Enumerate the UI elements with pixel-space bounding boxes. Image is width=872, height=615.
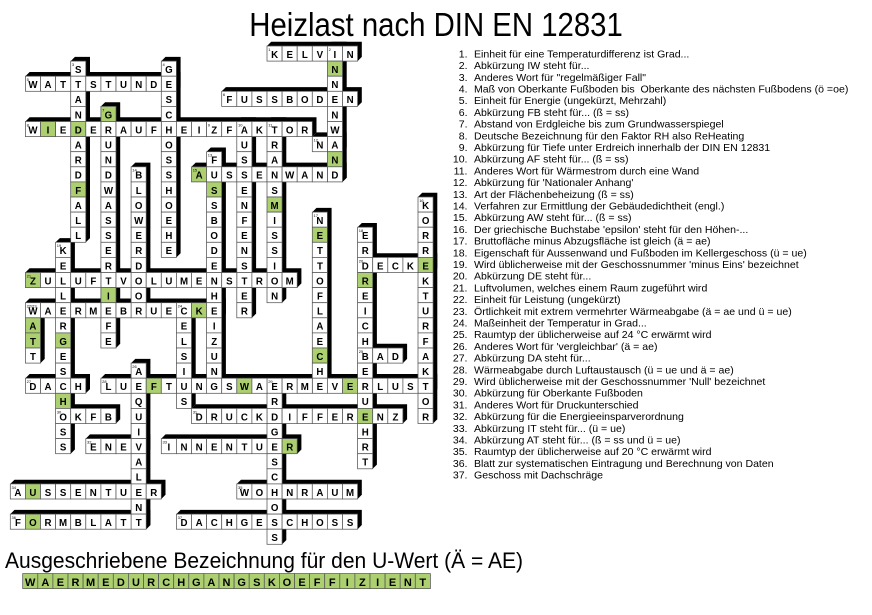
svg-text:21: 21 bbox=[27, 273, 32, 278]
svg-text:15: 15 bbox=[193, 168, 198, 173]
svg-text:T: T bbox=[105, 276, 111, 287]
svg-text:E: E bbox=[196, 276, 203, 287]
svg-text:Abkürzung DA steht für...: Abkürzung DA steht für... bbox=[474, 353, 591, 365]
svg-text:5.: 5. bbox=[459, 95, 468, 107]
svg-text:R: R bbox=[135, 307, 142, 318]
svg-text:8.: 8. bbox=[459, 130, 468, 142]
svg-text:E: E bbox=[286, 50, 293, 61]
svg-text:E: E bbox=[60, 261, 67, 272]
svg-text:W: W bbox=[25, 577, 36, 589]
svg-text:F: F bbox=[151, 125, 157, 136]
svg-text:25: 25 bbox=[359, 349, 364, 354]
svg-text:22.: 22. bbox=[453, 294, 468, 306]
svg-text:A: A bbox=[105, 201, 112, 212]
svg-text:A: A bbox=[45, 382, 52, 393]
svg-text:S: S bbox=[271, 518, 278, 529]
svg-text:T: T bbox=[362, 458, 368, 469]
svg-text:V: V bbox=[120, 276, 127, 287]
svg-text:L: L bbox=[90, 518, 96, 529]
svg-text:U: U bbox=[120, 488, 127, 499]
svg-text:V: V bbox=[317, 50, 324, 61]
svg-text:W: W bbox=[285, 171, 295, 182]
svg-text:36.: 36. bbox=[453, 458, 468, 470]
svg-text:U: U bbox=[241, 141, 248, 152]
svg-text:O: O bbox=[422, 216, 430, 227]
svg-text:22/23: 22/23 bbox=[27, 304, 38, 309]
svg-text:17: 17 bbox=[314, 213, 319, 218]
svg-text:N: N bbox=[226, 443, 233, 454]
svg-text:Abkürzung AF steht für... (ß =: Abkürzung AF steht für... (ß = ss) bbox=[474, 154, 628, 166]
svg-text:N: N bbox=[404, 577, 412, 589]
svg-text:F: F bbox=[317, 412, 323, 423]
svg-text:1.: 1. bbox=[459, 48, 468, 60]
svg-text:A: A bbox=[377, 352, 384, 363]
svg-text:24.: 24. bbox=[453, 318, 468, 330]
svg-text:Abkürzung für Oberkante Fußbod: Abkürzung für Oberkante Fußboden bbox=[474, 388, 643, 400]
svg-text:T: T bbox=[75, 80, 81, 91]
svg-text:D: D bbox=[331, 171, 338, 182]
svg-text:N: N bbox=[135, 503, 142, 514]
svg-text:E: E bbox=[57, 577, 64, 589]
svg-text:N: N bbox=[286, 488, 293, 499]
svg-text:Abkürzung AT steht für... (ß =: Abkürzung AT steht für... (ß = ss und ü … bbox=[474, 435, 681, 447]
svg-text:Anderes Wort für "regelmäßiger: Anderes Wort für "regelmäßiger Fall" bbox=[474, 72, 646, 84]
svg-text:S: S bbox=[271, 186, 278, 197]
svg-text:U: U bbox=[422, 307, 429, 318]
svg-text:S: S bbox=[75, 65, 82, 76]
svg-text:R: R bbox=[422, 412, 429, 423]
svg-text:N: N bbox=[196, 382, 203, 393]
svg-text:Blatt zur systematischen Eintr: Blatt zur systematischen Eintragung und … bbox=[474, 458, 774, 470]
svg-text:K: K bbox=[422, 276, 429, 287]
svg-text:R: R bbox=[105, 261, 112, 272]
svg-text:V: V bbox=[332, 382, 339, 393]
svg-text:C: C bbox=[60, 382, 67, 393]
svg-text:35.: 35. bbox=[453, 446, 468, 458]
svg-text:H: H bbox=[226, 518, 233, 529]
svg-text:U: U bbox=[120, 80, 127, 91]
svg-text:S: S bbox=[271, 533, 278, 544]
svg-text:B: B bbox=[120, 307, 127, 318]
svg-text:E: E bbox=[60, 307, 67, 318]
svg-text:O: O bbox=[29, 518, 37, 529]
svg-text:C: C bbox=[286, 518, 293, 529]
svg-text:3.: 3. bbox=[459, 72, 468, 84]
svg-text:N: N bbox=[331, 156, 338, 167]
svg-text:I: I bbox=[213, 322, 216, 333]
svg-text:31: 31 bbox=[193, 409, 198, 414]
svg-text:R: R bbox=[147, 577, 155, 589]
svg-text:O: O bbox=[301, 95, 309, 106]
svg-text:B: B bbox=[105, 412, 112, 423]
svg-text:E: E bbox=[60, 125, 67, 136]
svg-text:A: A bbox=[29, 322, 36, 333]
svg-text:O: O bbox=[316, 276, 324, 287]
svg-text:27: 27 bbox=[27, 379, 32, 384]
svg-text:F: F bbox=[226, 95, 232, 106]
svg-text:S: S bbox=[253, 577, 260, 589]
svg-text:33: 33 bbox=[163, 440, 168, 445]
svg-text:O: O bbox=[271, 276, 279, 287]
svg-text:D: D bbox=[117, 577, 125, 589]
svg-text:T: T bbox=[166, 382, 172, 393]
svg-text:I: I bbox=[334, 50, 337, 61]
svg-text:Raumtyp der üblicherweise auf: Raumtyp der üblicherweise auf 20 °C erwä… bbox=[474, 446, 712, 458]
svg-text:E: E bbox=[362, 412, 369, 423]
svg-text:32: 32 bbox=[87, 440, 92, 445]
svg-text:T: T bbox=[136, 518, 142, 529]
svg-text:R: R bbox=[60, 322, 67, 333]
svg-text:O: O bbox=[271, 503, 279, 514]
svg-text:C: C bbox=[162, 577, 170, 589]
svg-text:K: K bbox=[256, 125, 263, 136]
svg-text:D: D bbox=[271, 412, 278, 423]
svg-text:L: L bbox=[181, 337, 187, 348]
svg-text:E: E bbox=[120, 443, 127, 454]
svg-text:16: 16 bbox=[419, 198, 424, 203]
svg-text:H: H bbox=[177, 577, 185, 589]
svg-text:G: G bbox=[165, 65, 173, 76]
svg-text:C: C bbox=[271, 473, 278, 484]
svg-text:K: K bbox=[256, 412, 263, 423]
svg-text:B: B bbox=[286, 95, 293, 106]
svg-text:U: U bbox=[135, 412, 142, 423]
svg-text:R: R bbox=[301, 488, 308, 499]
svg-text:T: T bbox=[241, 443, 247, 454]
svg-text:I: I bbox=[107, 292, 110, 303]
svg-text:Wird üblicherweise mit der Ges: Wird üblicherweise mit der Geschossnumme… bbox=[474, 376, 765, 388]
svg-text:Maßeinheit der Temperatur in G: Maßeinheit der Temperatur in Grad... bbox=[474, 318, 647, 330]
svg-text:R: R bbox=[301, 125, 308, 136]
svg-text:M: M bbox=[346, 488, 354, 499]
svg-text:L: L bbox=[302, 50, 308, 61]
svg-text:H: H bbox=[362, 337, 369, 348]
svg-text:W: W bbox=[330, 125, 340, 136]
svg-text:A: A bbox=[196, 518, 203, 529]
svg-text:Art der Flächenbeheizung (ß =: Art der Flächenbeheizung (ß = ss) bbox=[474, 189, 634, 201]
svg-text:E: E bbox=[362, 367, 369, 378]
svg-text:U: U bbox=[211, 171, 218, 182]
svg-text:11.: 11. bbox=[454, 165, 468, 177]
svg-text:T: T bbox=[423, 292, 429, 303]
svg-text:N: N bbox=[241, 201, 248, 212]
svg-text:Einheit für Leistung (ungekürz: Einheit für Leistung (ungekürzt) bbox=[474, 294, 621, 306]
svg-text:E: E bbox=[166, 216, 173, 227]
svg-text:C: C bbox=[316, 352, 323, 363]
svg-text:B: B bbox=[211, 216, 218, 227]
svg-text:R: R bbox=[241, 307, 248, 318]
svg-text:G: G bbox=[192, 577, 201, 589]
svg-text:S: S bbox=[60, 427, 67, 438]
svg-text:6.: 6. bbox=[459, 107, 468, 119]
svg-text:N: N bbox=[331, 80, 338, 91]
svg-text:E: E bbox=[135, 488, 142, 499]
svg-text:A: A bbox=[271, 156, 278, 167]
svg-text:H: H bbox=[362, 427, 369, 438]
svg-text:25.: 25. bbox=[453, 329, 468, 341]
svg-text:M: M bbox=[86, 577, 95, 589]
svg-text:U: U bbox=[45, 276, 52, 287]
svg-text:R: R bbox=[256, 276, 263, 287]
svg-text:W: W bbox=[28, 125, 38, 136]
svg-text:18.: 18. bbox=[453, 247, 468, 259]
svg-text:Abkürzung AW steht für... (ß =: Abkürzung AW steht für... (ß = ss) bbox=[474, 212, 632, 224]
svg-text:K: K bbox=[422, 367, 429, 378]
svg-text:Verfahren zur Ermittlung der G: Verfahren zur Ermittlung der Gebäudedich… bbox=[474, 201, 724, 213]
svg-text:37: 37 bbox=[178, 515, 183, 520]
svg-text:N: N bbox=[135, 80, 142, 91]
svg-text:E: E bbox=[362, 292, 369, 303]
svg-text:U: U bbox=[181, 382, 188, 393]
svg-text:Z: Z bbox=[211, 125, 217, 136]
svg-text:E: E bbox=[211, 307, 218, 318]
svg-text:24: 24 bbox=[178, 304, 183, 309]
svg-text:R: R bbox=[422, 231, 429, 242]
svg-text:N: N bbox=[331, 110, 338, 121]
svg-text:S: S bbox=[166, 171, 173, 182]
svg-text:I: I bbox=[183, 367, 186, 378]
svg-text:S: S bbox=[407, 382, 414, 393]
svg-text:I: I bbox=[168, 443, 171, 454]
svg-text:H: H bbox=[211, 292, 218, 303]
svg-text:Örtlichkeit mit extrem vermehr: Örtlichkeit mit extrem vermehrter Wärmea… bbox=[474, 305, 792, 318]
svg-text:O: O bbox=[422, 397, 430, 408]
svg-text:I: I bbox=[47, 125, 50, 136]
svg-text:E: E bbox=[181, 322, 188, 333]
svg-text:A: A bbox=[41, 577, 49, 589]
svg-text:36: 36 bbox=[12, 515, 17, 520]
svg-text:R: R bbox=[422, 246, 429, 257]
svg-text:N: N bbox=[347, 50, 354, 61]
svg-text:D: D bbox=[135, 261, 142, 272]
svg-text:I: I bbox=[346, 577, 349, 589]
svg-text:N: N bbox=[271, 292, 278, 303]
svg-text:M: M bbox=[301, 382, 309, 393]
svg-text:E: E bbox=[317, 337, 324, 348]
svg-text:E: E bbox=[211, 261, 218, 272]
svg-text:E: E bbox=[105, 307, 112, 318]
svg-text:E: E bbox=[135, 231, 142, 242]
svg-text:F: F bbox=[329, 577, 336, 589]
svg-text:N: N bbox=[377, 412, 384, 423]
svg-text:H: H bbox=[165, 125, 172, 136]
svg-text:Anderes Wort für Druckuntersch: Anderes Wort für Druckunterschied bbox=[474, 399, 639, 411]
svg-text:H: H bbox=[60, 397, 67, 408]
svg-text:Abkürzung IT steht für... (ü =: Abkürzung IT steht für... (ü = ue) bbox=[474, 423, 625, 435]
svg-text:W: W bbox=[240, 382, 250, 393]
svg-text:Abkürzung FB steht für... (ß =: Abkürzung FB steht für... (ß = ss) bbox=[474, 107, 629, 119]
svg-text:G: G bbox=[241, 518, 249, 529]
svg-text:14: 14 bbox=[132, 168, 137, 173]
svg-text:15.: 15. bbox=[453, 212, 468, 224]
svg-text:U: U bbox=[165, 276, 172, 287]
svg-text:12: 12 bbox=[314, 138, 319, 143]
svg-text:U: U bbox=[75, 276, 82, 287]
svg-text:O: O bbox=[210, 231, 218, 242]
svg-text:T: T bbox=[317, 261, 323, 272]
svg-text:O: O bbox=[165, 141, 173, 152]
svg-text:S: S bbox=[45, 488, 52, 499]
svg-text:R: R bbox=[286, 443, 293, 454]
svg-text:O: O bbox=[165, 201, 173, 212]
svg-text:H: H bbox=[271, 488, 278, 499]
svg-text:R: R bbox=[271, 141, 278, 152]
svg-text:T: T bbox=[105, 488, 111, 499]
svg-text:I: I bbox=[364, 307, 367, 318]
svg-text:34: 34 bbox=[12, 485, 17, 490]
svg-text:E: E bbox=[256, 518, 263, 529]
svg-text:L: L bbox=[136, 186, 142, 197]
svg-text:R: R bbox=[75, 307, 82, 318]
svg-text:O: O bbox=[286, 125, 294, 136]
svg-text:Eigenschaft für Aussenwand und: Eigenschaft für Aussenwand und Fußboden … bbox=[474, 247, 807, 259]
svg-text:T: T bbox=[105, 80, 111, 91]
svg-text:S: S bbox=[271, 95, 278, 106]
svg-text:I: I bbox=[376, 577, 379, 589]
svg-text:F: F bbox=[317, 292, 323, 303]
svg-text:N: N bbox=[271, 171, 278, 182]
svg-text:E: E bbox=[135, 382, 142, 393]
svg-text:R: R bbox=[362, 276, 369, 287]
svg-text:L: L bbox=[136, 473, 142, 484]
svg-text:E: E bbox=[389, 577, 396, 589]
svg-text:Heizlast nach DIN EN 12831: Heizlast nach DIN EN 12831 bbox=[249, 7, 623, 44]
svg-text:M: M bbox=[271, 201, 279, 212]
svg-text:Einheit für eine Temperaturdif: Einheit für eine Temperaturdifferenz ist… bbox=[474, 48, 689, 60]
svg-text:19.: 19. bbox=[453, 259, 468, 271]
svg-text:I: I bbox=[273, 216, 276, 227]
svg-text:U: U bbox=[132, 577, 140, 589]
svg-text:S: S bbox=[241, 171, 248, 182]
svg-text:C: C bbox=[241, 412, 248, 423]
svg-text:13: 13 bbox=[208, 153, 213, 158]
svg-text:Anderes Wort für 'vergleichbar: Anderes Wort für 'vergleichbar' (ä = ae) bbox=[474, 341, 658, 353]
svg-text:T: T bbox=[30, 337, 36, 348]
svg-text:F: F bbox=[226, 125, 232, 136]
svg-text:Abstand von Erdgleiche bis zum: Abstand von Erdgleiche bis zum Grundwass… bbox=[474, 119, 724, 131]
svg-text:30.: 30. bbox=[453, 388, 468, 400]
svg-text:M: M bbox=[180, 276, 188, 287]
svg-text:V: V bbox=[135, 443, 142, 454]
svg-text:N: N bbox=[223, 577, 231, 589]
svg-text:19: 19 bbox=[57, 243, 62, 248]
svg-text:F: F bbox=[90, 276, 96, 287]
svg-text:26.: 26. bbox=[453, 341, 468, 353]
svg-text:Raumtyp der üblicherweise auf: Raumtyp der üblicherweise auf 24 °C erwä… bbox=[474, 329, 712, 341]
svg-text:Abkürzung IW steht für...: Abkürzung IW steht für... bbox=[474, 60, 589, 72]
svg-text:S: S bbox=[211, 186, 218, 197]
svg-text:I: I bbox=[198, 125, 201, 136]
svg-text:A: A bbox=[331, 141, 338, 152]
svg-text:Ausgeschriebene Bezeichnung fü: Ausgeschriebene Bezeichnung für den U-We… bbox=[5, 548, 523, 573]
svg-text:C: C bbox=[211, 518, 218, 529]
svg-text:28: 28 bbox=[102, 379, 107, 384]
svg-text:E: E bbox=[75, 488, 82, 499]
svg-text:20.: 20. bbox=[453, 271, 468, 283]
svg-text:R: R bbox=[211, 412, 218, 423]
svg-text:D: D bbox=[316, 95, 323, 106]
svg-text:U: U bbox=[135, 125, 142, 136]
svg-text:I: I bbox=[273, 261, 276, 272]
svg-text:W: W bbox=[28, 80, 38, 91]
svg-text:E: E bbox=[211, 443, 218, 454]
svg-text:A: A bbox=[207, 577, 215, 589]
svg-text:14.: 14. bbox=[453, 201, 468, 213]
svg-text:E: E bbox=[241, 231, 248, 242]
svg-text:E: E bbox=[105, 246, 112, 257]
svg-text:S: S bbox=[181, 397, 188, 408]
svg-text:R: R bbox=[72, 577, 80, 589]
svg-text:U: U bbox=[226, 412, 233, 423]
svg-text:I: I bbox=[288, 412, 291, 423]
svg-text:C: C bbox=[362, 322, 369, 333]
svg-text:R: R bbox=[362, 246, 369, 257]
svg-text:S: S bbox=[105, 216, 112, 227]
svg-text:T: T bbox=[121, 518, 127, 529]
svg-text:U: U bbox=[150, 307, 157, 318]
svg-text:O: O bbox=[135, 292, 143, 303]
svg-text:Maß von Oberkante Fußboden bis: Maß von Oberkante Fußboden bis Oberkante… bbox=[474, 84, 848, 96]
svg-text:2.: 2. bbox=[459, 60, 468, 72]
svg-text:R: R bbox=[422, 322, 429, 333]
svg-text:N: N bbox=[181, 443, 188, 454]
svg-text:R: R bbox=[150, 488, 157, 499]
svg-text:S: S bbox=[226, 382, 233, 393]
svg-text:A: A bbox=[316, 322, 323, 333]
svg-text:34.: 34. bbox=[453, 435, 468, 447]
svg-text:S: S bbox=[271, 458, 278, 469]
svg-text:E: E bbox=[317, 382, 324, 393]
svg-text:S: S bbox=[181, 352, 188, 363]
svg-text:S: S bbox=[271, 231, 278, 242]
svg-text:E: E bbox=[332, 412, 339, 423]
svg-text:S: S bbox=[166, 156, 173, 167]
svg-text:Bruttofläche minus Abzugsfläch: Bruttofläche minus Abzugsfläche ist glei… bbox=[474, 236, 711, 248]
svg-text:E: E bbox=[256, 171, 263, 182]
svg-text:F: F bbox=[302, 412, 308, 423]
svg-text:N: N bbox=[196, 443, 203, 454]
svg-text:W: W bbox=[104, 186, 114, 197]
svg-text:N: N bbox=[75, 110, 82, 121]
svg-text:L: L bbox=[60, 276, 66, 287]
svg-text:S: S bbox=[332, 518, 339, 529]
svg-text:A: A bbox=[75, 95, 82, 106]
svg-text:H: H bbox=[301, 518, 308, 529]
svg-text:A: A bbox=[301, 171, 308, 182]
svg-text:35: 35 bbox=[238, 485, 243, 490]
svg-text:E: E bbox=[317, 231, 324, 242]
svg-text:21.: 21. bbox=[453, 282, 468, 294]
svg-text:L: L bbox=[60, 292, 66, 303]
svg-text:O: O bbox=[256, 488, 264, 499]
svg-text:U: U bbox=[392, 382, 399, 393]
svg-text:O: O bbox=[316, 518, 324, 529]
svg-text:D: D bbox=[75, 171, 82, 182]
svg-text:E: E bbox=[298, 577, 305, 589]
svg-text:R: R bbox=[105, 125, 112, 136]
svg-text:Wärmeabgabe durch Luftaustausc: Wärmeabgabe durch Luftaustausch (ü = ue … bbox=[474, 364, 734, 376]
svg-text:Einheit für Energie (ungekürzt: Einheit für Energie (ungekürzt, Mehrzahl… bbox=[474, 95, 666, 107]
svg-text:L: L bbox=[75, 216, 81, 227]
svg-text:A: A bbox=[422, 352, 429, 363]
svg-text:G: G bbox=[237, 577, 246, 589]
svg-text:C: C bbox=[165, 110, 172, 121]
svg-text:Q: Q bbox=[135, 397, 143, 408]
svg-text:9.: 9. bbox=[459, 142, 468, 154]
svg-text:E: E bbox=[102, 577, 109, 589]
svg-text:N: N bbox=[316, 171, 323, 182]
svg-text:E: E bbox=[90, 125, 97, 136]
